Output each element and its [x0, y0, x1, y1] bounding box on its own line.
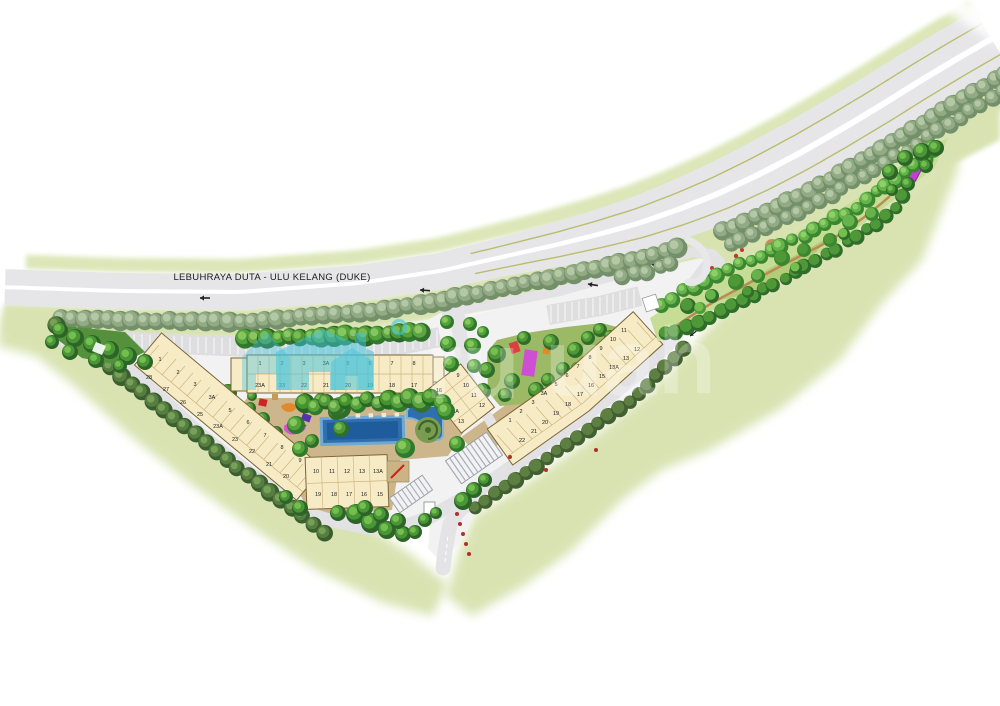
svg-text:6: 6 [246, 420, 249, 426]
svg-text:21: 21 [531, 429, 537, 435]
svg-text:20: 20 [542, 420, 548, 426]
svg-text:ru: ru [425, 313, 520, 419]
svg-text:23A: 23A [255, 383, 265, 389]
svg-text:8: 8 [412, 361, 415, 367]
svg-text:LEBUHRAYA DUTA - ULU KELANG (D: LEBUHRAYA DUTA - ULU KELANG (DUKE) [173, 272, 370, 283]
svg-text:10: 10 [313, 469, 319, 475]
svg-text:18: 18 [389, 383, 395, 389]
svg-text:13: 13 [359, 469, 365, 475]
svg-text:17: 17 [346, 492, 352, 498]
svg-text:19: 19 [315, 492, 321, 498]
svg-text:23: 23 [232, 437, 238, 443]
svg-text:17: 17 [411, 383, 417, 389]
svg-text:21: 21 [266, 462, 272, 468]
svg-text:21: 21 [323, 383, 329, 389]
svg-text:3: 3 [193, 382, 196, 388]
svg-text:1: 1 [158, 357, 161, 363]
svg-text:22: 22 [519, 438, 525, 444]
svg-text:15: 15 [377, 492, 383, 498]
svg-text:22: 22 [249, 449, 255, 455]
svg-text:7: 7 [263, 433, 266, 439]
svg-text:3: 3 [531, 400, 534, 406]
svg-text:8: 8 [280, 445, 283, 451]
svg-text:25: 25 [197, 412, 203, 418]
svg-text:23A: 23A [213, 424, 223, 430]
svg-text:16: 16 [361, 492, 367, 498]
svg-text:13: 13 [458, 419, 464, 425]
svg-text:18: 18 [331, 492, 337, 498]
svg-text:13A: 13A [373, 469, 383, 475]
svg-text:28: 28 [146, 375, 152, 381]
svg-text:3A: 3A [209, 395, 216, 401]
svg-text:ua: ua [545, 310, 657, 416]
svg-text:7: 7 [390, 361, 393, 367]
svg-text:9: 9 [298, 458, 301, 464]
svg-text:26: 26 [180, 400, 186, 406]
svg-text:5: 5 [228, 408, 231, 414]
svg-text:2: 2 [176, 370, 179, 376]
svg-text:11: 11 [329, 469, 335, 475]
svg-text:12: 12 [344, 469, 350, 475]
svg-text:20: 20 [283, 474, 289, 480]
svg-text:27: 27 [163, 387, 169, 393]
svg-text:h: h [658, 308, 716, 414]
